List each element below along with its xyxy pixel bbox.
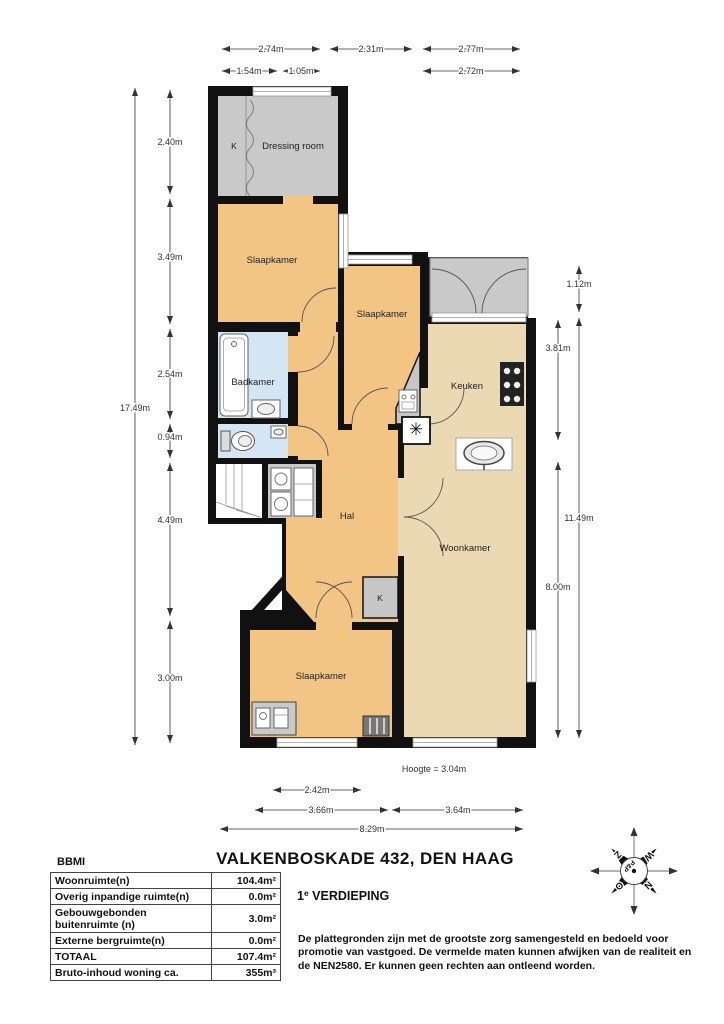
row-label: Woonruimte(n) (51, 873, 212, 889)
window (348, 255, 412, 264)
label-keuken: Keuken (451, 381, 483, 392)
dim-label: 8.00m (545, 582, 570, 592)
disclaimer-text: De plattegronden zijn met de grootste zo… (298, 933, 698, 973)
table-row: Bruto-inhoud woning ca.355m³ (51, 965, 281, 981)
radiator (363, 716, 389, 736)
bathroom-sink (252, 400, 280, 418)
row-label: TOTAAL (51, 949, 212, 965)
floorplan-drawing: ✳ Dressing room K Slaapkamer Badkamer Sl… (0, 0, 724, 1024)
vent-box: ✳ (402, 417, 430, 444)
label-badkamer: Badkamer (231, 377, 274, 388)
dim-label: 4.49m (157, 515, 182, 525)
bedroom-unit (252, 702, 296, 735)
row-value: 355m³ (212, 965, 281, 981)
height-note: Hoogte = 3.04m (402, 764, 466, 774)
dim-label: 17.49m (120, 403, 150, 413)
floor-word: VERDIEPING (312, 889, 389, 903)
label-kast-hal: K (377, 593, 383, 603)
vent-icon: ✳ (409, 420, 423, 439)
dim-label: 2.31m (358, 44, 383, 54)
dim-label: 11.49m (564, 513, 593, 523)
dim-label: 2.72m (458, 66, 483, 76)
table-row: Externe bergruimte(n)0.0m² (51, 933, 281, 949)
label-slaapkamer-3: Slaapkamer (296, 671, 347, 682)
window (277, 738, 357, 747)
compass-rose: P&P N O Z W (587, 824, 682, 919)
balcony-door-glass (432, 313, 526, 322)
row-value: 0.0m² (212, 933, 281, 949)
window (253, 87, 331, 96)
dim-label: 2.74m (258, 44, 283, 54)
floor-label: 1e VERDIEPING (297, 889, 389, 903)
dim-label: 0.94m (157, 432, 182, 442)
table-row: Woonruimte(n)104.4m² (51, 873, 281, 889)
page-title: VALKENBOSKADE 432, DEN HAAG (140, 849, 590, 869)
table-row: Overig inpandige ruimte(n)0.0m² (51, 889, 281, 905)
label-slaapkamer-2: Slaapkamer (357, 309, 408, 320)
dim-label: 3.49m (157, 252, 182, 262)
label-woonkamer: Woonkamer (439, 543, 490, 554)
row-value: 0.0m² (212, 889, 281, 905)
floorplan-page: ✳ Dressing room K Slaapkamer Badkamer Sl… (0, 0, 724, 1024)
dim-label: 1.05m (288, 66, 313, 76)
label-dressing-room: Dressing room (262, 141, 324, 152)
dryer (271, 492, 291, 516)
toilet (221, 431, 255, 451)
dim-label: 1.12m (566, 279, 591, 289)
row-label: Bruto-inhoud woning ca. (51, 965, 212, 981)
dim-label: 2.54m (157, 369, 182, 379)
balcony (430, 258, 528, 316)
dim-label: 2.77m (458, 44, 483, 54)
floor-number: 1 (297, 889, 304, 903)
dim-label: 3.00m (157, 673, 182, 683)
label-hal: Hal (340, 511, 354, 522)
designer-basin (456, 438, 512, 470)
dim-label: 2.42m (304, 785, 329, 795)
window (339, 214, 348, 268)
table-row: TOTAAL107.4m² (51, 949, 281, 965)
washer (271, 468, 291, 490)
row-value: 3.0m² (212, 905, 281, 933)
label-kast-dressing: K (231, 141, 237, 151)
room-woonkamer (404, 438, 526, 737)
dim-label: 3.66m (308, 805, 333, 815)
floor-superscript: e (304, 888, 309, 898)
row-label: Externe bergruimte(n) (51, 933, 212, 949)
window (413, 738, 497, 747)
stove (500, 362, 524, 406)
bbmi-label: BBMI (57, 856, 85, 868)
label-slaapkamer-1: Slaapkamer (247, 255, 298, 266)
window (527, 630, 536, 682)
cabinet (294, 468, 313, 516)
row-value: 104.4m² (212, 873, 281, 889)
row-label: Gebouwgebonden buitenruimte (n) (51, 905, 212, 933)
dim-label: 3.81m (545, 343, 570, 353)
row-value: 107.4m² (212, 949, 281, 965)
area-summary-table: Woonruimte(n)104.4m² Overig inpandige ru… (50, 872, 281, 981)
row-label: Overig inpandige ruimte(n) (51, 889, 212, 905)
bathtub (220, 334, 248, 416)
dim-label: 3.64m (445, 805, 470, 815)
dim-label: 8.29m (359, 824, 384, 834)
dim-label: 2.40m (157, 137, 182, 147)
wc-sink (271, 426, 286, 438)
table-row: Gebouwgebonden buitenruimte (n)3.0m² (51, 905, 281, 933)
dim-label: 1.54m (236, 66, 261, 76)
